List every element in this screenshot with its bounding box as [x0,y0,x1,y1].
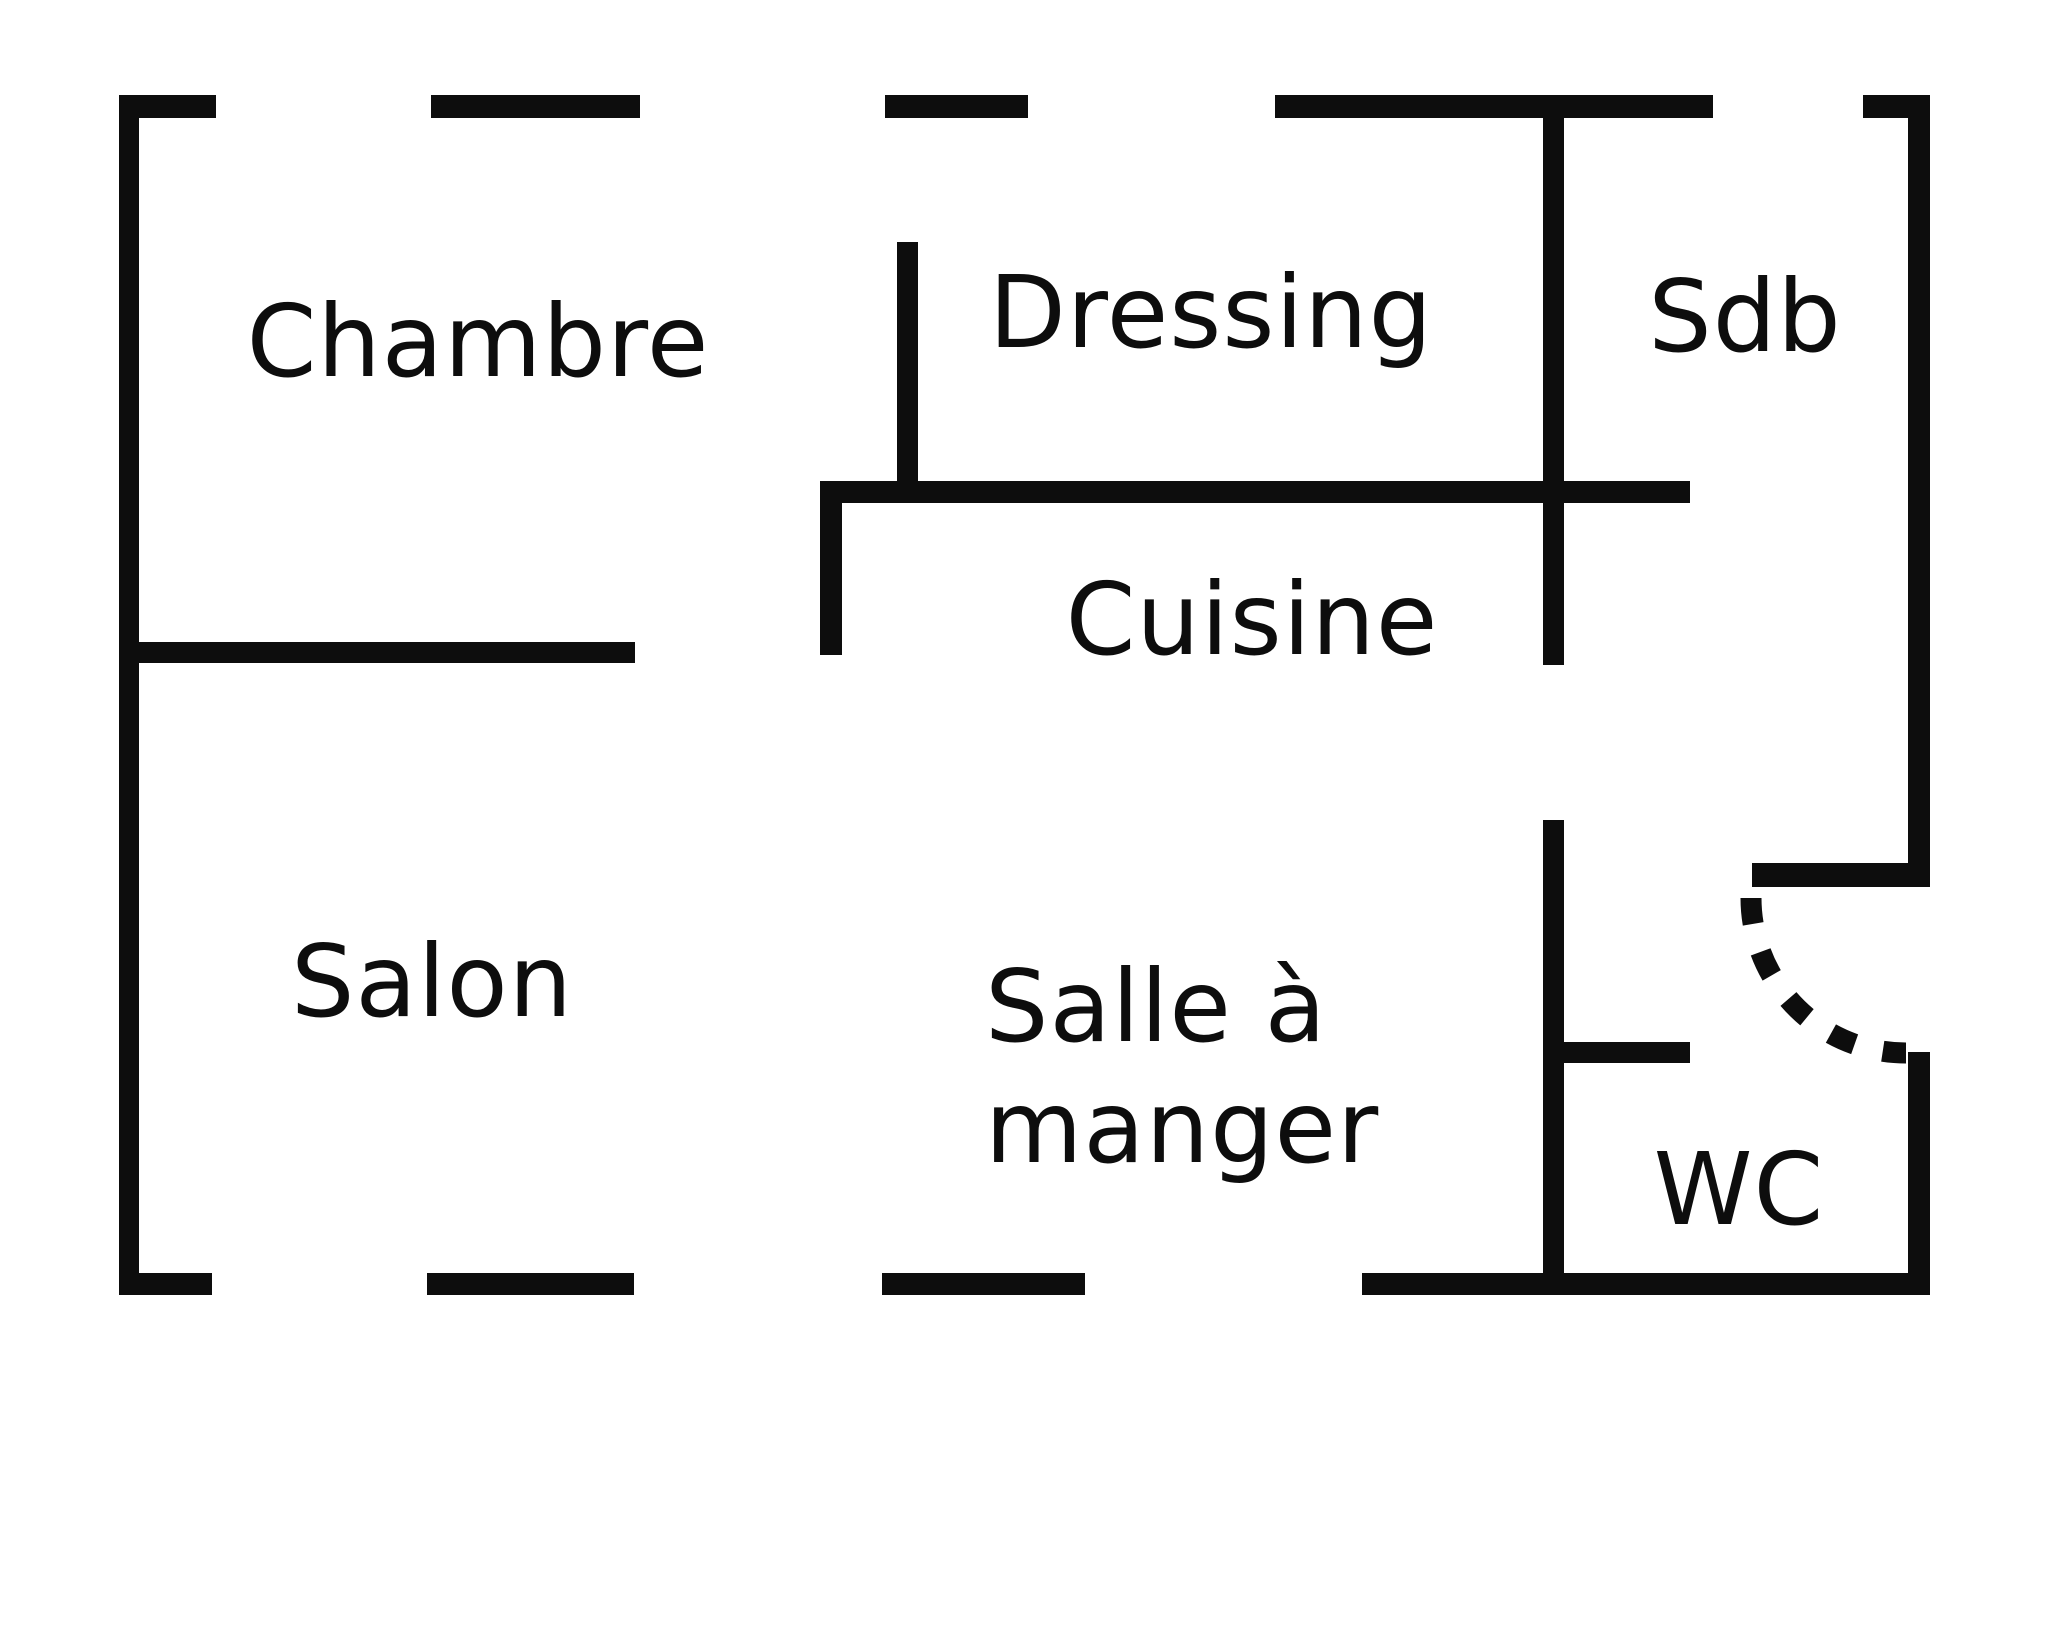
wall-bottom-segment-4 [1362,1273,1930,1295]
floor-plan-walls [0,0,2048,1645]
room-label-salon: Salon [291,932,573,1032]
room-label-chambre: Chambre [247,292,710,392]
room-label-salle-a-manger: Salle à manger [985,946,1415,1188]
room-label-wc: WC [1654,1140,1825,1240]
wall-wc-top-stub [1543,1042,1690,1063]
room-label-sdb: Sdb [1648,267,1841,367]
wall-dressing-sdb-divider [1543,98,1564,665]
wall-bottom-segment-3 [882,1273,1085,1295]
wall-top-segment-4 [1275,95,1713,118]
door-swing-arc [1751,898,1906,1053]
floor-plan-canvas: Chambre Dressing Sdb Cuisine Salon Salle… [0,0,2048,1645]
wall-bottom-segment-2 [427,1273,634,1295]
wall-top-segment-2 [431,95,640,118]
wall-bottom-segment-1 [119,1273,212,1295]
wall-chambre-salon-divider [119,642,635,663]
wall-right-upper [1908,95,1930,887]
wall-entry-door-stub [1752,863,1930,887]
room-label-dressing: Dressing [989,263,1433,363]
wall-left-outer [119,95,139,1295]
wall-cuisine-left [820,481,842,655]
wall-top-segment-3 [885,95,1028,118]
wall-dressing-left [897,242,918,503]
wall-right-lower [1908,1052,1930,1295]
room-label-cuisine: Cuisine [1066,570,1439,670]
wall-top-segment-1 [119,95,216,118]
